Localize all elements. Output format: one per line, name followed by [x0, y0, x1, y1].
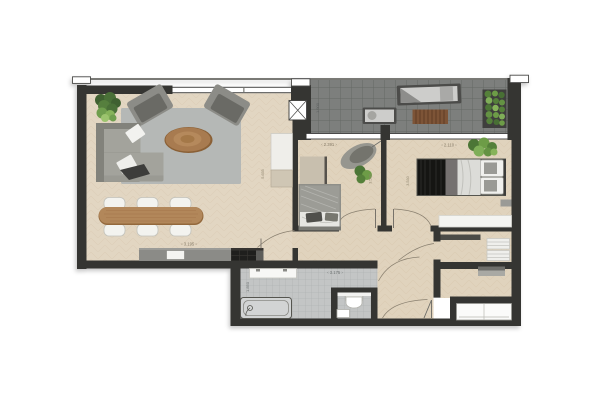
- svg-text:‹ 3.195 ›: ‹ 3.195 ›: [181, 242, 197, 247]
- svg-text:‹ 2.391 ›: ‹ 2.391 ›: [321, 142, 337, 147]
- svg-text:‹ 2.110 ›: ‹ 2.110 ›: [441, 143, 457, 148]
- svg-text:3.530: 3.530: [369, 174, 373, 184]
- svg-text:3.530: 3.530: [406, 176, 410, 186]
- svg-text:1.850: 1.850: [245, 281, 250, 292]
- svg-text:‹ 3.175 ›: ‹ 3.175 ›: [327, 270, 343, 275]
- svg-text:5.655: 5.655: [261, 169, 265, 179]
- svg-text:1.900: 1.900: [315, 102, 320, 113]
